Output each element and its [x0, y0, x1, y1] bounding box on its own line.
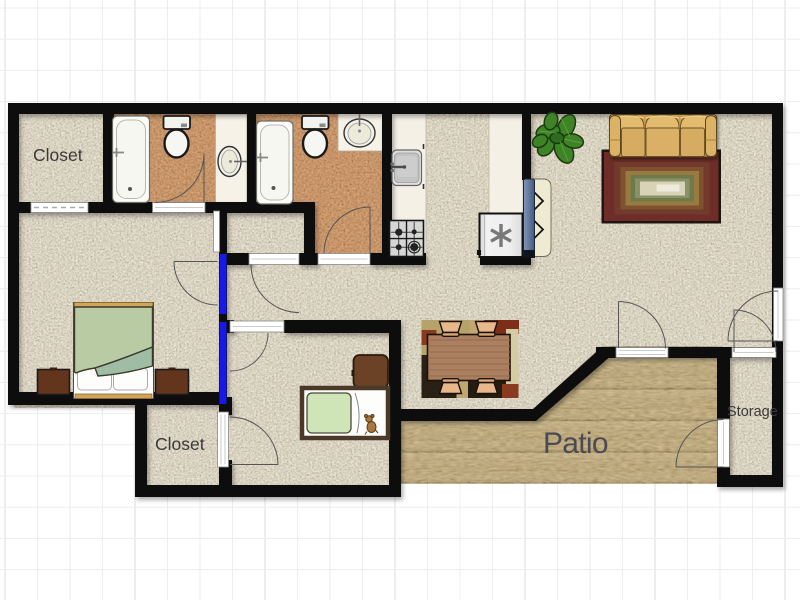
svg-text:Patio: Patio	[543, 427, 608, 460]
svg-text:Closet: Closet	[155, 434, 205, 454]
svg-text:Closet: Closet	[33, 145, 83, 165]
svg-text:Storage: Storage	[727, 404, 778, 420]
